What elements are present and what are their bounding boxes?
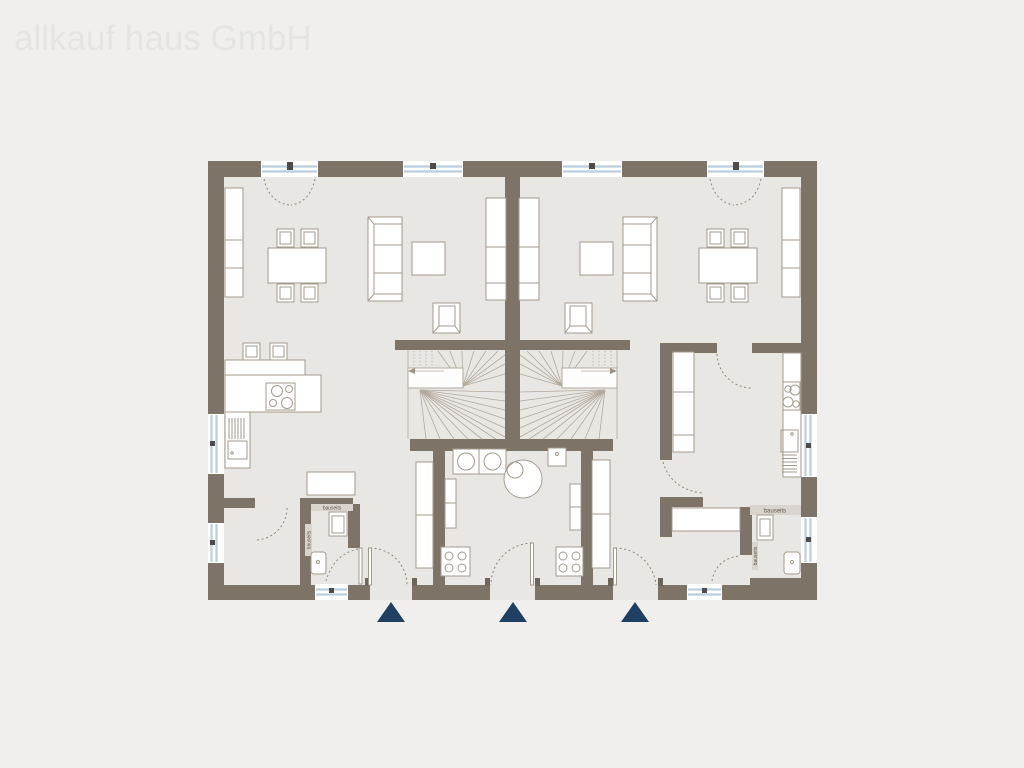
window-left-storage: [208, 523, 224, 563]
bauseits-label-left-top: bauseits: [323, 506, 342, 512]
entrance-marker: [499, 602, 527, 622]
shelf: [570, 484, 581, 530]
coffee-table: [412, 242, 445, 275]
sofa: [368, 217, 402, 301]
armchair: [433, 303, 460, 333]
tall-cabinet-exterior: [225, 188, 243, 297]
washbasin: [757, 515, 773, 540]
dryer: [479, 449, 506, 474]
meter-box: [556, 547, 583, 576]
floor-plan-svg: allkauf haus GmbH: [0, 0, 1024, 768]
window-left-kitchen: [208, 414, 224, 474]
kitchen-counter-back: [225, 360, 305, 375]
bar-stool: [270, 343, 287, 360]
bauseits-label-right-top: bauseits: [764, 509, 786, 515]
sideboard: [672, 508, 740, 531]
washing-machine: [453, 449, 479, 474]
window-right-wc: [801, 517, 817, 563]
toilet: [311, 552, 326, 574]
dining-table: [268, 248, 326, 283]
window-bottom-right: [687, 584, 722, 600]
wardrobe: [592, 460, 610, 568]
boiler: [504, 460, 542, 498]
dining-chair: [277, 284, 294, 302]
shelf: [445, 479, 456, 528]
dining-chair: [277, 229, 294, 247]
bauseits-label-left-side: bauseits: [307, 530, 313, 549]
entrance-markers: [377, 602, 649, 622]
bauseits-label-right-side: bauseits: [753, 546, 759, 565]
window-bottom-left: [315, 584, 348, 600]
window-top-right: [562, 161, 622, 177]
toilet: [784, 552, 800, 574]
entrance-marker: [377, 602, 405, 622]
window-right-kitchen: [801, 414, 817, 477]
wardrobe: [416, 462, 433, 568]
tall-cabinet-party-wall: [486, 198, 506, 300]
sideboard: [307, 472, 355, 495]
entrance-marker: [621, 602, 649, 622]
window-top-left: [403, 161, 463, 177]
washbasin: [329, 512, 347, 536]
meter-box: [441, 547, 470, 576]
control-box: [548, 448, 566, 466]
bar-stool: [243, 343, 260, 360]
party-wall: [505, 177, 520, 340]
dining-chair: [301, 284, 318, 302]
dining-chair: [301, 229, 318, 247]
watermark-text: allkauf haus GmbH: [14, 19, 312, 58]
kitchen-cabinet-column: [673, 352, 694, 452]
